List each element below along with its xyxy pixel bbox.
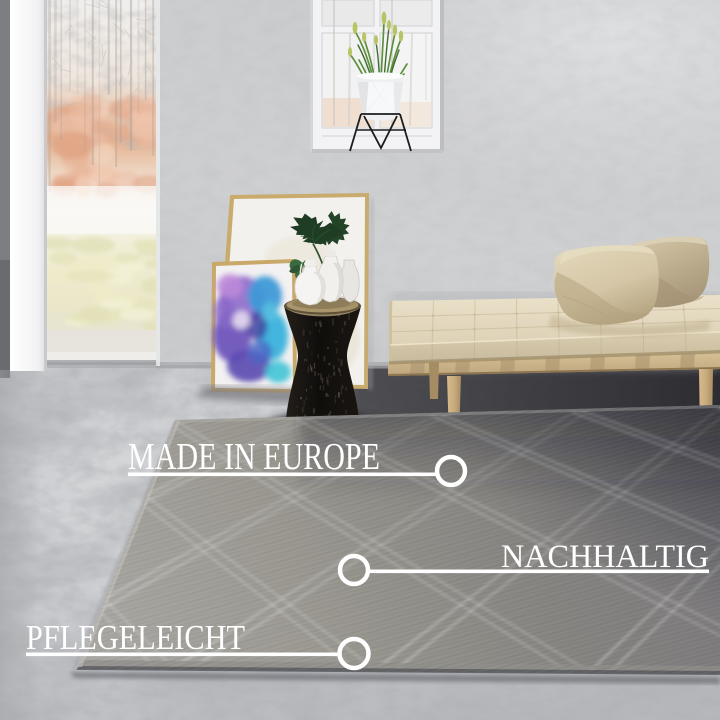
svg-text:PFLEGELEICHT: PFLEGELEICHT (26, 619, 245, 657)
svg-text:MADE IN EUROPE: MADE IN EUROPE (128, 436, 380, 478)
